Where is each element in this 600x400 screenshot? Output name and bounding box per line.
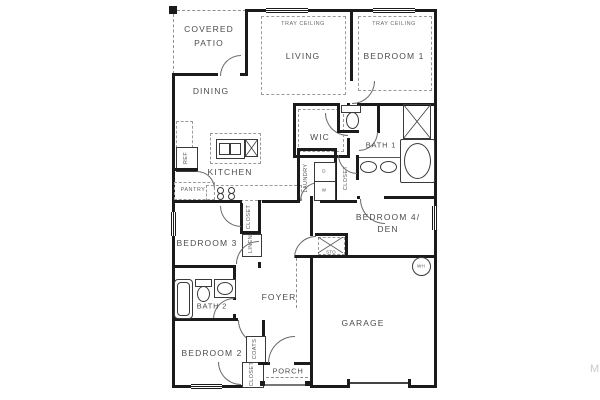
closet-label: CLOSET: [246, 205, 252, 229]
bathtub-icon: [177, 282, 190, 316]
room-label-bedroom4: BEDROOM 4/: [356, 212, 420, 222]
coats-label: COATS: [252, 339, 258, 360]
bathtub-icon: [404, 143, 431, 179]
kitchen-sink-icon: [219, 143, 230, 155]
wall: [408, 379, 411, 387]
toilet-icon: [197, 286, 210, 302]
door-arc: [218, 362, 241, 385]
window: [266, 8, 308, 13]
range-burner-icon: [217, 193, 224, 200]
wall: [295, 255, 310, 258]
porch-post: [260, 381, 265, 386]
refrigerator-label: REF: [183, 152, 189, 164]
room-label-bath1: BATH 1: [366, 141, 397, 150]
wall: [408, 385, 437, 388]
cabinet: [176, 121, 193, 148]
room-label-living: LIVING: [286, 51, 320, 61]
floor-plan-canvas: REF PANTRY D W LAUNDRY CLOSET STO: [0, 0, 600, 400]
sink-icon: [380, 161, 397, 173]
room-label-garage: GARAGE: [342, 318, 385, 328]
patio-post: [169, 6, 177, 14]
wall: [310, 255, 313, 388]
room-label-covered-patio: COVERED: [184, 24, 234, 34]
wall: [172, 73, 218, 76]
toilet-icon: [346, 112, 359, 129]
vanity-counter: [358, 157, 400, 158]
wall: [310, 385, 350, 388]
wall: [310, 196, 313, 236]
wall: [172, 168, 198, 171]
patio-edge: [177, 10, 246, 11]
storage-label: STO: [326, 250, 336, 255]
door-arc: [220, 55, 241, 76]
wall: [293, 103, 337, 106]
room-label-pantry: PANTRY: [181, 187, 206, 193]
room-label-bedroom3: BEDROOM 3: [177, 238, 238, 248]
washer-label: W: [322, 188, 326, 193]
water-heater-label: WH: [417, 264, 425, 269]
door-arc: [220, 206, 241, 227]
window: [432, 206, 437, 230]
wall: [297, 148, 337, 151]
patio-edge: [173, 14, 174, 74]
closet-label: CLOSET: [343, 166, 349, 190]
wall: [337, 130, 359, 133]
wall: [337, 103, 340, 133]
room-label-covered-patio: PATIO: [194, 38, 224, 48]
shower-icon: [403, 104, 431, 139]
room-label-laundry: LAUNDRY: [303, 164, 309, 193]
porch-edge: [262, 384, 310, 386]
kitchen-sink-icon: [230, 143, 241, 155]
door-arc: [236, 241, 259, 264]
closet-label: CLOSET: [249, 362, 255, 386]
wall: [240, 73, 248, 76]
room-label-bedroom2: BEDROOM 2: [182, 348, 243, 358]
tray-ceiling-label: TRAY CEILING: [372, 21, 416, 27]
room-label-bedroom1: BEDROOM 1: [364, 51, 425, 61]
tray-ceiling-label: TRAY CEILING: [281, 21, 325, 27]
room-label-bath2: BATH 2: [197, 302, 228, 311]
wall: [315, 233, 348, 236]
wall: [172, 265, 236, 268]
window: [171, 212, 176, 236]
garage-door: [350, 382, 408, 384]
room-label-bedroom4-den: DEN: [377, 224, 398, 234]
wall: [297, 148, 300, 203]
window: [191, 384, 222, 389]
range-burner-icon: [228, 193, 235, 200]
room-label-foyer: FOYER: [262, 292, 297, 302]
wall: [245, 9, 248, 75]
wall: [377, 103, 380, 133]
room-label-wic: WIC: [310, 132, 330, 142]
front-door-arc: [268, 336, 295, 363]
wall: [384, 196, 437, 199]
room-label-kitchen: KITCHEN: [207, 167, 252, 177]
sink-icon: [360, 161, 377, 173]
room-label-dining: DINING: [193, 86, 229, 96]
wall: [293, 103, 296, 158]
dishwasher-icon: [245, 139, 258, 157]
window: [373, 8, 415, 13]
porch-edge: [266, 377, 308, 378]
wall: [172, 200, 242, 203]
sink-icon: [217, 282, 233, 295]
wall: [262, 200, 300, 203]
wall: [320, 200, 357, 203]
room-label-porch: PORCH: [272, 367, 303, 376]
wall: [350, 9, 353, 81]
watermark: M: [590, 363, 599, 375]
dryer-label: D: [322, 169, 325, 174]
